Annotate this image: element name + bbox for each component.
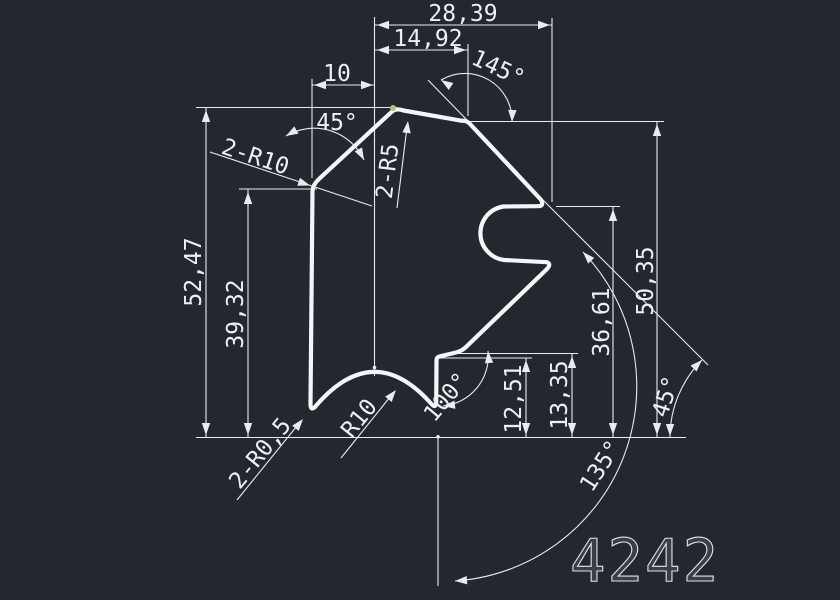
dim-text: 39,32 [223,279,249,348]
dim-text: 45° [316,110,358,136]
dim-text: 36,61 [589,287,615,356]
corner-marker [436,435,440,439]
dim-text: 52,47 [181,237,207,306]
part-number-text[interactable]: 4242 [570,526,720,595]
dim-text: 14,92 [393,26,462,52]
dim-text: 50,35 [633,246,659,315]
dim-13-35[interactable]: 13,35 [547,354,576,438]
dim-text: 10 [323,61,351,87]
cad-viewport[interactable]: 28,39 14,92 10 52,47 39,32 12,51 [0,0,840,600]
dim-text: 12,51 [501,364,527,433]
apex-grip-marker [390,105,396,111]
dim-text: 13,35 [547,360,573,429]
drawing-canvas[interactable]: 28,39 14,92 10 52,47 39,32 12,51 [0,0,840,600]
dim-text: 28,39 [428,1,497,27]
canvas-background [0,0,840,600]
dim-12-51[interactable]: 12,51 [501,358,530,438]
arch-peak-marker [373,366,377,370]
